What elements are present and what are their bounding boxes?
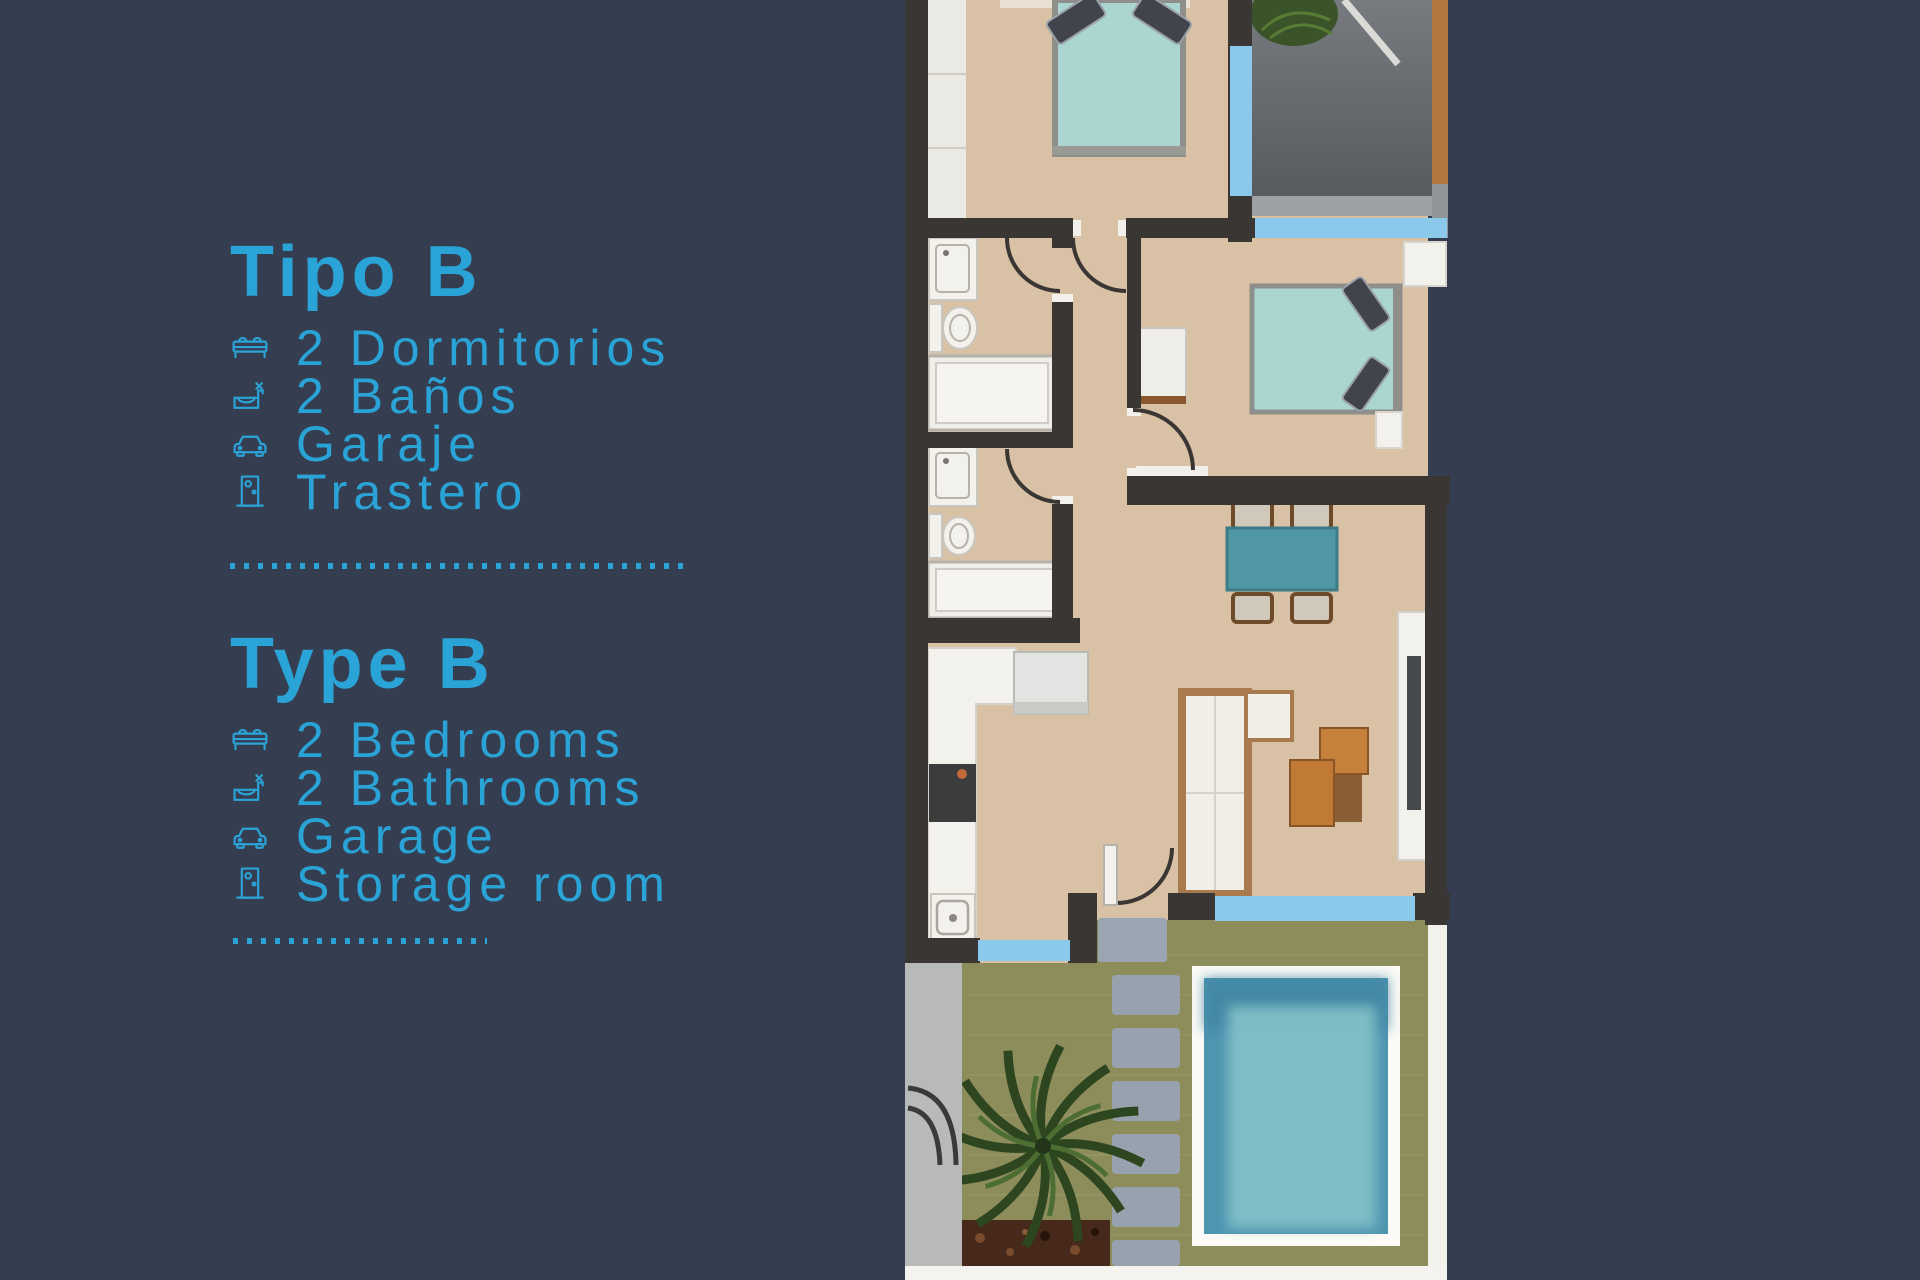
chair (1233, 594, 1272, 622)
feature-label: 2 Bedrooms (296, 716, 626, 764)
dotted-divider (230, 563, 692, 569)
entrance-door-leaf (1104, 845, 1117, 905)
toilet (929, 514, 975, 558)
feature-label: Trastero (296, 468, 528, 516)
feature-label: Garaje (296, 420, 482, 468)
dotted-divider (233, 938, 487, 944)
dining-table (1227, 528, 1337, 590)
door-icon (230, 864, 270, 904)
feature-label: Storage room (296, 860, 671, 908)
kitchen-sink (931, 894, 975, 940)
chair (1233, 501, 1272, 529)
section-heading-es: Tipo B (230, 236, 671, 308)
section-heading-en: Type B (230, 628, 671, 700)
garden-right-border (1428, 920, 1447, 1267)
living-room-window (1215, 896, 1415, 921)
car-icon (230, 816, 270, 856)
brochure-page: { "page": { "background_color": "#353e51… (0, 0, 1920, 1280)
bathroom-icon (230, 768, 270, 808)
feature-label: 2 Bathrooms (296, 764, 645, 812)
kitchen-window (978, 940, 1070, 961)
bedside-table (1376, 412, 1402, 448)
garden (905, 918, 1447, 1267)
wardrobe (1140, 328, 1186, 402)
tv-cabinet (1398, 612, 1428, 860)
bedside-table (1404, 242, 1446, 286)
chair (1292, 501, 1331, 529)
feature-row-banos: 2 Baños (230, 372, 671, 420)
bedroom-terrace-window (1230, 46, 1252, 196)
armchair (1246, 692, 1292, 740)
feature-label: 2 Dormitorios (296, 324, 671, 372)
feature-label: 2 Baños (296, 372, 521, 420)
chair (1292, 594, 1331, 622)
section-type-b: Type B 2 Bedrooms (230, 628, 671, 908)
bed-icon (230, 328, 270, 368)
double-bed (1252, 276, 1402, 414)
feature-row-trastero: Trastero (230, 468, 671, 516)
feature-label: Garage (296, 812, 499, 860)
section-tipo-b: Tipo B 2 Dormitorios (230, 236, 671, 516)
outside-stair-area (905, 963, 962, 1267)
shower (928, 562, 1068, 618)
feature-row-dormitorios: 2 Dormitorios (230, 324, 671, 372)
door-icon (230, 472, 270, 512)
double-bed (1045, 0, 1192, 155)
pool (1192, 966, 1400, 1246)
feature-row-garage: Garage (230, 812, 671, 860)
toilet (929, 304, 977, 352)
garage-terrace (1250, 0, 1448, 238)
shower (928, 356, 1056, 430)
wardrobe (928, 0, 966, 222)
plan-bottom-border (905, 1266, 1447, 1280)
bathroom-icon (230, 376, 270, 416)
bed-icon (230, 720, 270, 760)
terrace-window (1255, 218, 1447, 238)
feature-row-garaje: Garaje (230, 420, 671, 468)
feature-row-storage: Storage room (230, 860, 671, 908)
cooktop (929, 764, 976, 822)
entrance-step (1098, 918, 1167, 962)
feature-row-bathrooms: 2 Bathrooms (230, 764, 671, 812)
feature-row-bedrooms: 2 Bedrooms (230, 716, 671, 764)
tv (1407, 656, 1421, 810)
car-icon (230, 424, 270, 464)
wood-edge (1432, 0, 1448, 184)
